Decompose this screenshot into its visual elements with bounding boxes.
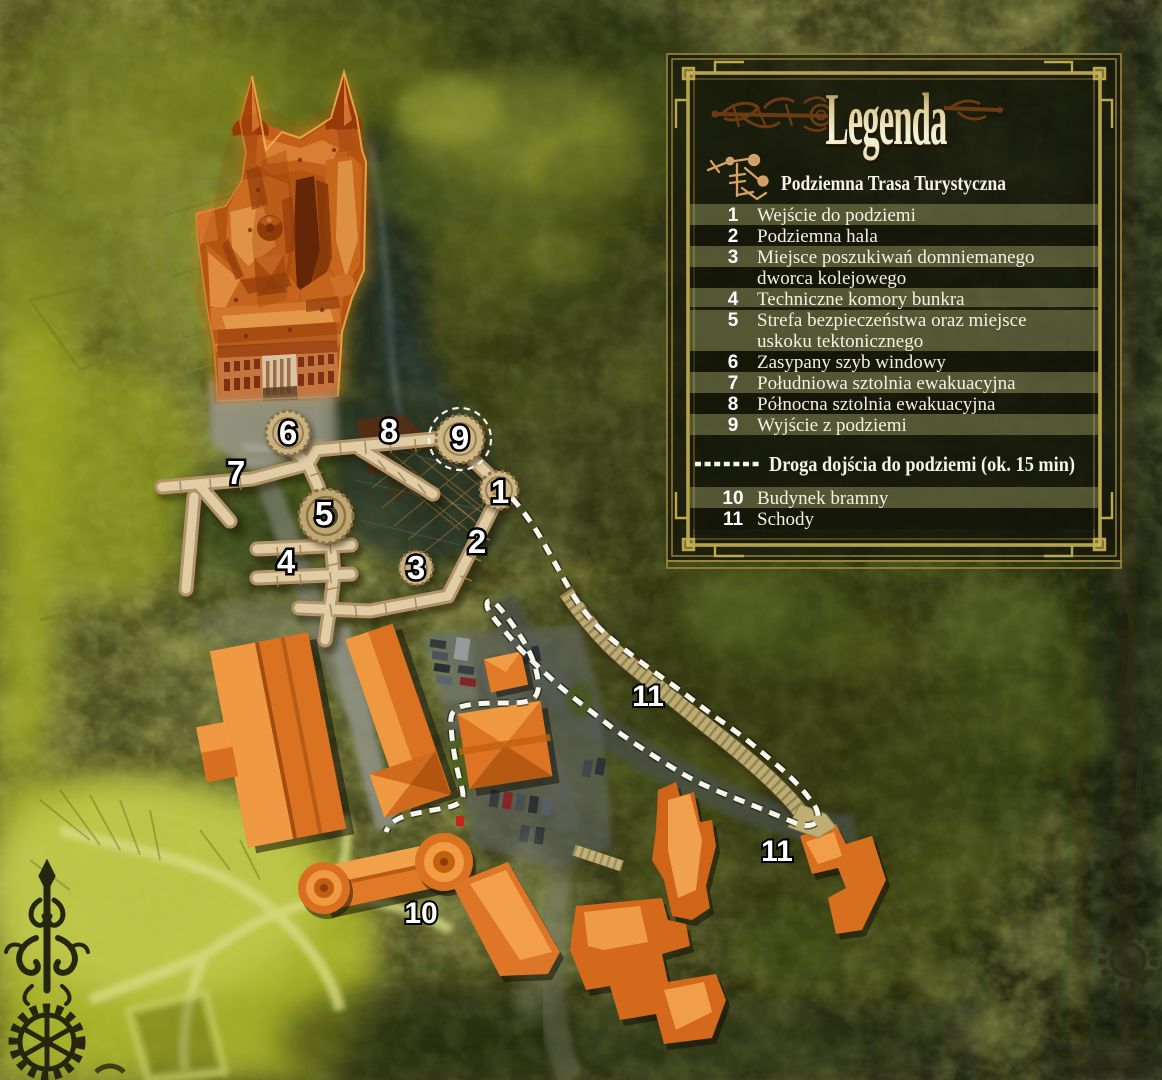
svg-text:Techniczne komory bunkra: Techniczne komory bunkra bbox=[757, 289, 965, 310]
svg-text:9: 9 bbox=[451, 419, 469, 456]
svg-text:Strefa bezpieczeństwa oraz mie: Strefa bezpieczeństwa oraz miejsce bbox=[757, 310, 1027, 331]
svg-text:7: 7 bbox=[227, 454, 245, 491]
svg-text:3: 3 bbox=[407, 549, 425, 586]
svg-text:4: 4 bbox=[277, 543, 296, 580]
svg-text:Północna sztolnia ewakuacyjna: Północna sztolnia ewakuacyjna bbox=[757, 394, 996, 415]
svg-text:1: 1 bbox=[728, 205, 739, 226]
svg-text:Zasypany szyb windowy: Zasypany szyb windowy bbox=[757, 352, 946, 373]
svg-text:2: 2 bbox=[468, 523, 486, 560]
svg-text:Wejście do podziemi: Wejście do podziemi bbox=[757, 205, 916, 226]
svg-text:Podziemna hala: Podziemna hala bbox=[757, 226, 878, 247]
svg-text:Droga dojścia do podziemi (ok.: Droga dojścia do podziemi (ok. 15 min) bbox=[769, 452, 1075, 476]
svg-text:Wyjście z podziemi: Wyjście z podziemi bbox=[757, 415, 907, 436]
svg-text:1: 1 bbox=[491, 473, 509, 510]
svg-text:11: 11 bbox=[723, 509, 744, 530]
svg-text:9: 9 bbox=[728, 415, 739, 436]
svg-text:Schody: Schody bbox=[757, 509, 815, 530]
svg-text:6: 6 bbox=[279, 414, 297, 451]
svg-text:7: 7 bbox=[728, 373, 739, 394]
svg-text:Południowa sztolnia ewakuacyjn: Południowa sztolnia ewakuacyjna bbox=[757, 373, 1016, 394]
svg-text:Podziemna Trasa Turystyczna: Podziemna Trasa Turystyczna bbox=[781, 171, 1006, 195]
svg-text:4: 4 bbox=[728, 289, 739, 310]
svg-text:11: 11 bbox=[761, 835, 793, 868]
svg-text:5: 5 bbox=[315, 495, 333, 532]
svg-text:5: 5 bbox=[728, 310, 739, 331]
svg-text:Miejsce poszukiwań domniemaneg: Miejsce poszukiwań domniemanego bbox=[757, 247, 1035, 268]
svg-text:10: 10 bbox=[404, 897, 437, 930]
svg-text:6: 6 bbox=[728, 352, 739, 373]
svg-text:11: 11 bbox=[632, 680, 664, 713]
svg-text:dworca kolejowego: dworca kolejowego bbox=[757, 268, 906, 289]
svg-text:uskoku tektonicznego: uskoku tektonicznego bbox=[757, 331, 923, 352]
svg-text:8: 8 bbox=[380, 412, 398, 449]
svg-text:Legenda: Legenda bbox=[826, 77, 948, 160]
svg-text:3: 3 bbox=[728, 247, 739, 268]
svg-text:Budynek bramny: Budynek bramny bbox=[757, 488, 889, 509]
svg-text:2: 2 bbox=[728, 226, 739, 247]
svg-text:8: 8 bbox=[728, 394, 739, 415]
svg-text:10: 10 bbox=[722, 488, 743, 509]
